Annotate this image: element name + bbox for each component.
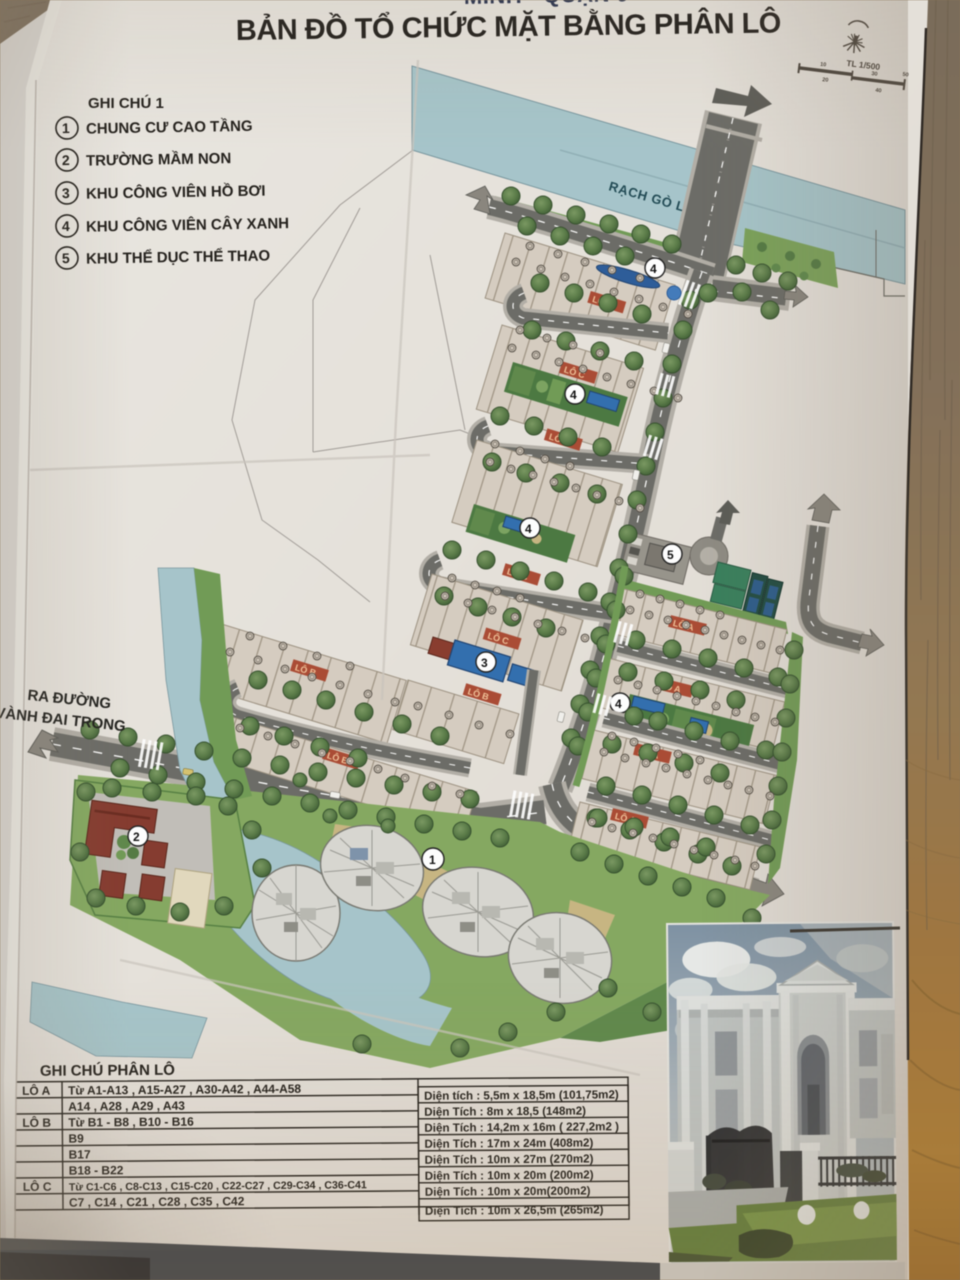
svg-text:2: 2 bbox=[133, 830, 140, 844]
svg-text:4: 4 bbox=[650, 262, 657, 276]
svg-text:4: 4 bbox=[570, 388, 577, 402]
svg-text:1: 1 bbox=[429, 853, 436, 867]
svg-text:4: 4 bbox=[615, 697, 622, 711]
svg-text:4: 4 bbox=[525, 522, 532, 536]
svg-text:5: 5 bbox=[667, 548, 674, 562]
svg-text:3: 3 bbox=[481, 656, 488, 670]
